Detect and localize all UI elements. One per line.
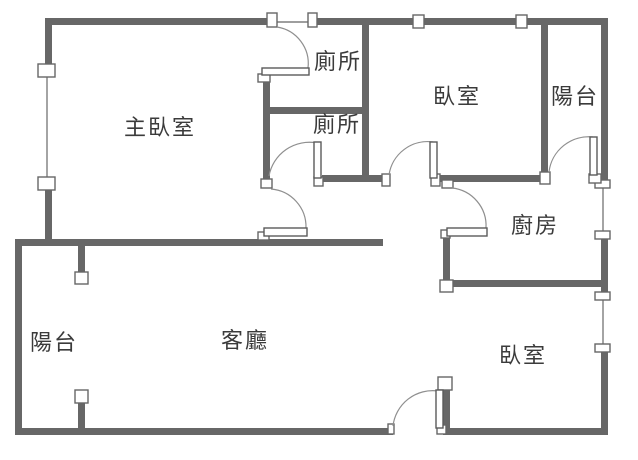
door-leaf-toilet-upper <box>262 68 309 75</box>
room-label-kitchen: 廚房 <box>511 214 559 239</box>
wall-cap <box>440 280 453 292</box>
floor-plan-canvas: 主臥室 廁所 廁所 臥室 陽台 廚房 陽台 客廳 臥室 <box>0 0 638 460</box>
window-sill <box>38 177 55 190</box>
door-arc-entry <box>393 391 438 426</box>
wall-kitchen-bottom <box>448 280 601 287</box>
window-marker-top-bedroom <box>413 15 424 28</box>
wall-rear-balcony-partition <box>541 18 548 172</box>
door-jamb <box>382 174 390 186</box>
room-label-toilet-lower: 廁所 <box>313 113 361 138</box>
wall-right-middle <box>601 239 608 292</box>
wall-left-upper-top <box>45 18 52 65</box>
room-label-master-bedroom: 主臥室 <box>124 116 196 141</box>
floor-plan: 主臥室 廁所 廁所 臥室 陽台 廚房 陽台 客廳 臥室 <box>0 0 638 460</box>
wall-toilet-right <box>362 18 369 180</box>
wall-right-lower <box>601 352 608 435</box>
room-label-bedroom-top: 臥室 <box>433 85 481 110</box>
room-label-bedroom-right: 臥室 <box>499 344 547 369</box>
door-jamb <box>442 180 453 188</box>
window-sill <box>38 64 55 77</box>
door-arc-kitchen <box>452 188 486 228</box>
wall-living-top <box>15 239 383 246</box>
door-leaf-entry <box>436 390 443 428</box>
door-leaf-balcony-rear <box>590 137 597 175</box>
door-leaf-bedroom-top <box>430 142 437 178</box>
wall-left-lower <box>15 239 22 435</box>
door-arc-toilet-upper <box>277 27 308 68</box>
wall-cap <box>261 179 272 188</box>
wall-cap <box>540 172 550 184</box>
wall-kitchen-left <box>443 238 450 282</box>
wall-front-balcony-stub-top <box>78 246 85 273</box>
window-sill <box>267 13 277 27</box>
wall-right-upper <box>601 18 608 180</box>
window-sill <box>595 292 610 300</box>
wall-cap <box>75 390 88 403</box>
room-label-toilet-upper: 廁所 <box>314 50 362 75</box>
wall-top-left <box>45 18 270 25</box>
room-label-balcony-rear: 陽台 <box>551 85 599 110</box>
window-sill <box>308 13 317 27</box>
wall-bottom-left <box>15 428 393 435</box>
wall-cap <box>75 272 88 284</box>
window-marker-top-balcony <box>516 15 527 28</box>
door-arc-bedroom-top <box>389 142 433 175</box>
room-label-living-room: 客廳 <box>221 329 269 354</box>
wall-toilet-left-lower <box>263 114 270 180</box>
door-leaf-kitchen <box>447 228 487 236</box>
door-leaf-toilet-lower <box>314 142 321 178</box>
door-arc-balcony-rear <box>549 137 593 172</box>
wall-cap <box>438 377 452 390</box>
room-label-balcony-front: 陽台 <box>30 331 78 356</box>
door-arc-toilet-lower <box>269 142 317 176</box>
wall-left-upper-bottom <box>45 190 52 246</box>
wall-toilet-bottom <box>322 175 383 182</box>
door-arc-master-bedroom <box>271 189 306 228</box>
window-sill <box>595 344 610 352</box>
window-sill <box>595 231 610 239</box>
wall-top-right <box>317 18 608 25</box>
wall-front-balcony-stub-bottom <box>78 403 85 435</box>
wall-bottom-right <box>445 428 608 435</box>
door-leaf-master-bedroom <box>264 228 307 236</box>
